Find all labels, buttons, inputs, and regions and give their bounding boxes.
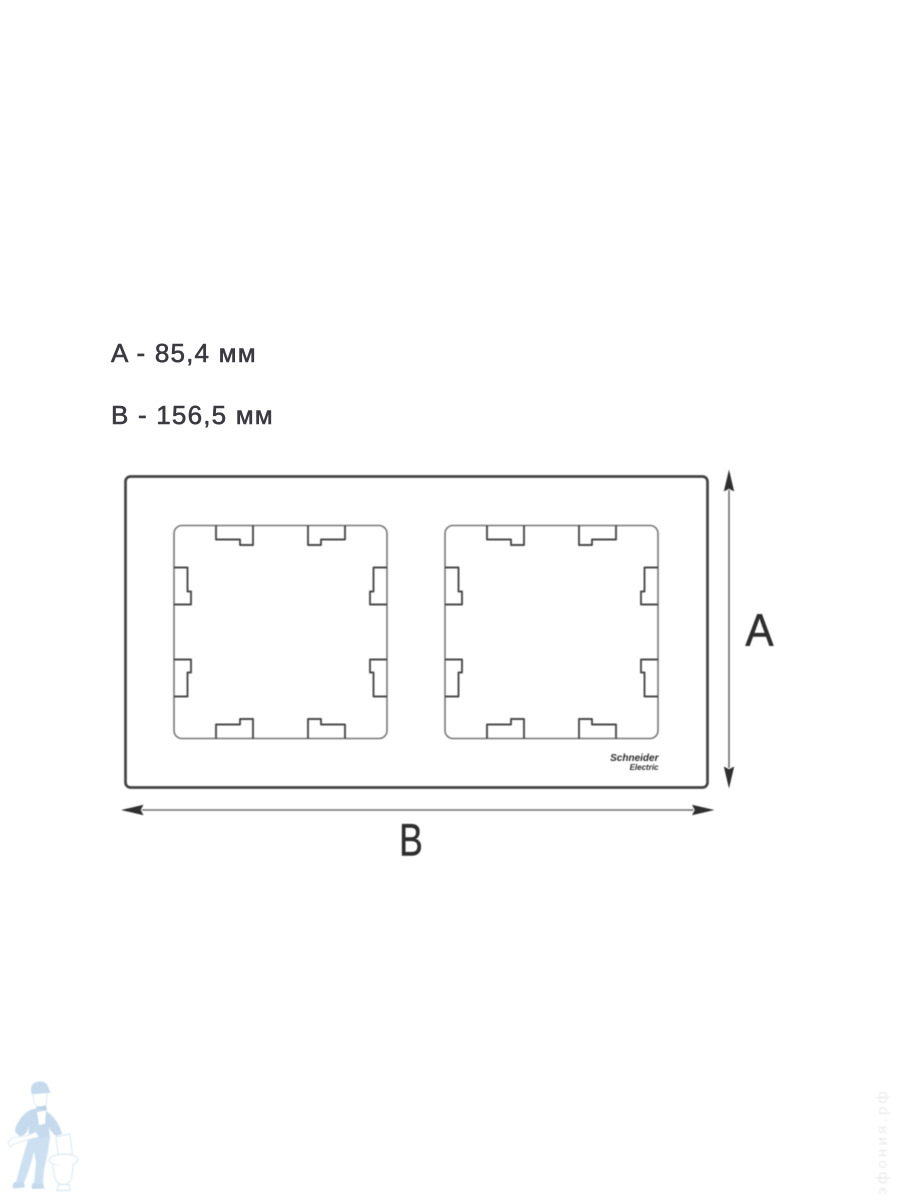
- svg-text:B: B: [399, 814, 423, 865]
- svg-text:A: A: [745, 605, 774, 656]
